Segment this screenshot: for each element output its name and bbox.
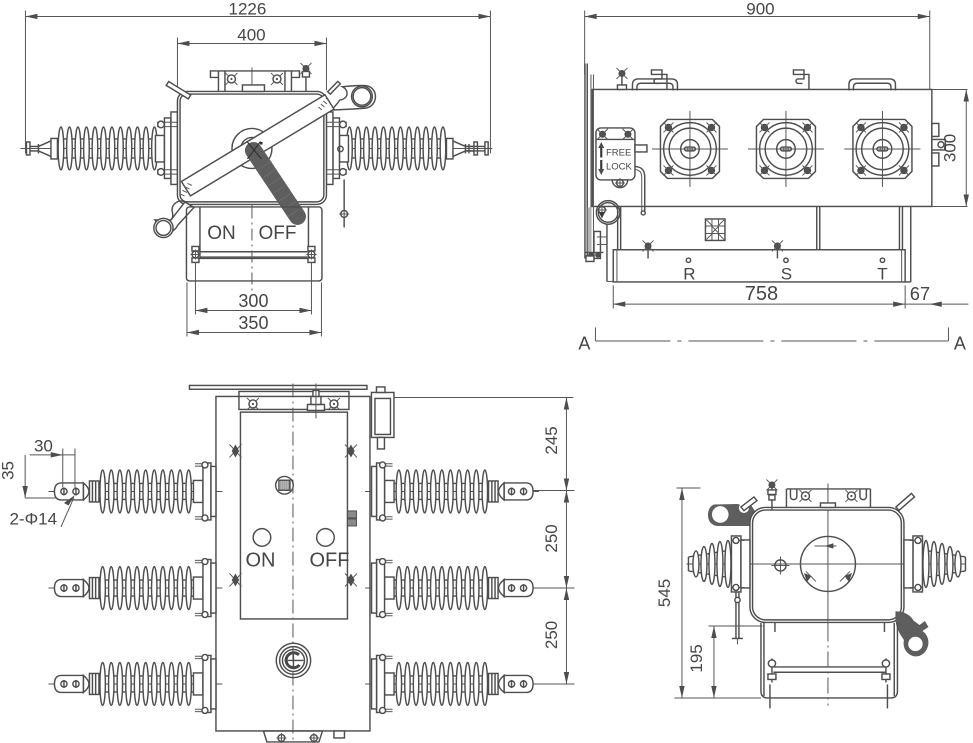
svg-text:FREE: FREE (606, 147, 631, 158)
svg-text:A: A (954, 333, 966, 353)
svg-text:OFF: OFF (309, 549, 349, 571)
svg-text:245: 245 (542, 426, 561, 454)
svg-text:250: 250 (542, 524, 561, 552)
svg-text:T: T (877, 264, 887, 283)
svg-text:S: S (781, 264, 792, 283)
svg-text:ON: ON (207, 223, 236, 244)
svg-text:ON: ON (245, 549, 275, 571)
svg-text:250: 250 (542, 621, 561, 649)
svg-text:67: 67 (910, 284, 930, 304)
svg-text:195: 195 (687, 644, 706, 672)
svg-text:400: 400 (237, 25, 265, 44)
svg-text:545: 545 (655, 579, 674, 607)
svg-text:35: 35 (0, 461, 17, 480)
svg-text:300: 300 (238, 291, 268, 311)
svg-text:R: R (683, 264, 695, 283)
svg-text:758: 758 (745, 283, 778, 305)
svg-text:350: 350 (238, 313, 268, 333)
svg-text:LOCK: LOCK (606, 161, 633, 172)
svg-text:30: 30 (34, 436, 53, 455)
svg-text:OFF: OFF (258, 223, 296, 244)
svg-text:1226: 1226 (229, 0, 267, 18)
svg-text:2-Φ14: 2-Φ14 (9, 509, 57, 528)
svg-text:300: 300 (940, 134, 959, 162)
svg-text:900: 900 (746, 0, 774, 18)
svg-text:A: A (578, 333, 590, 353)
